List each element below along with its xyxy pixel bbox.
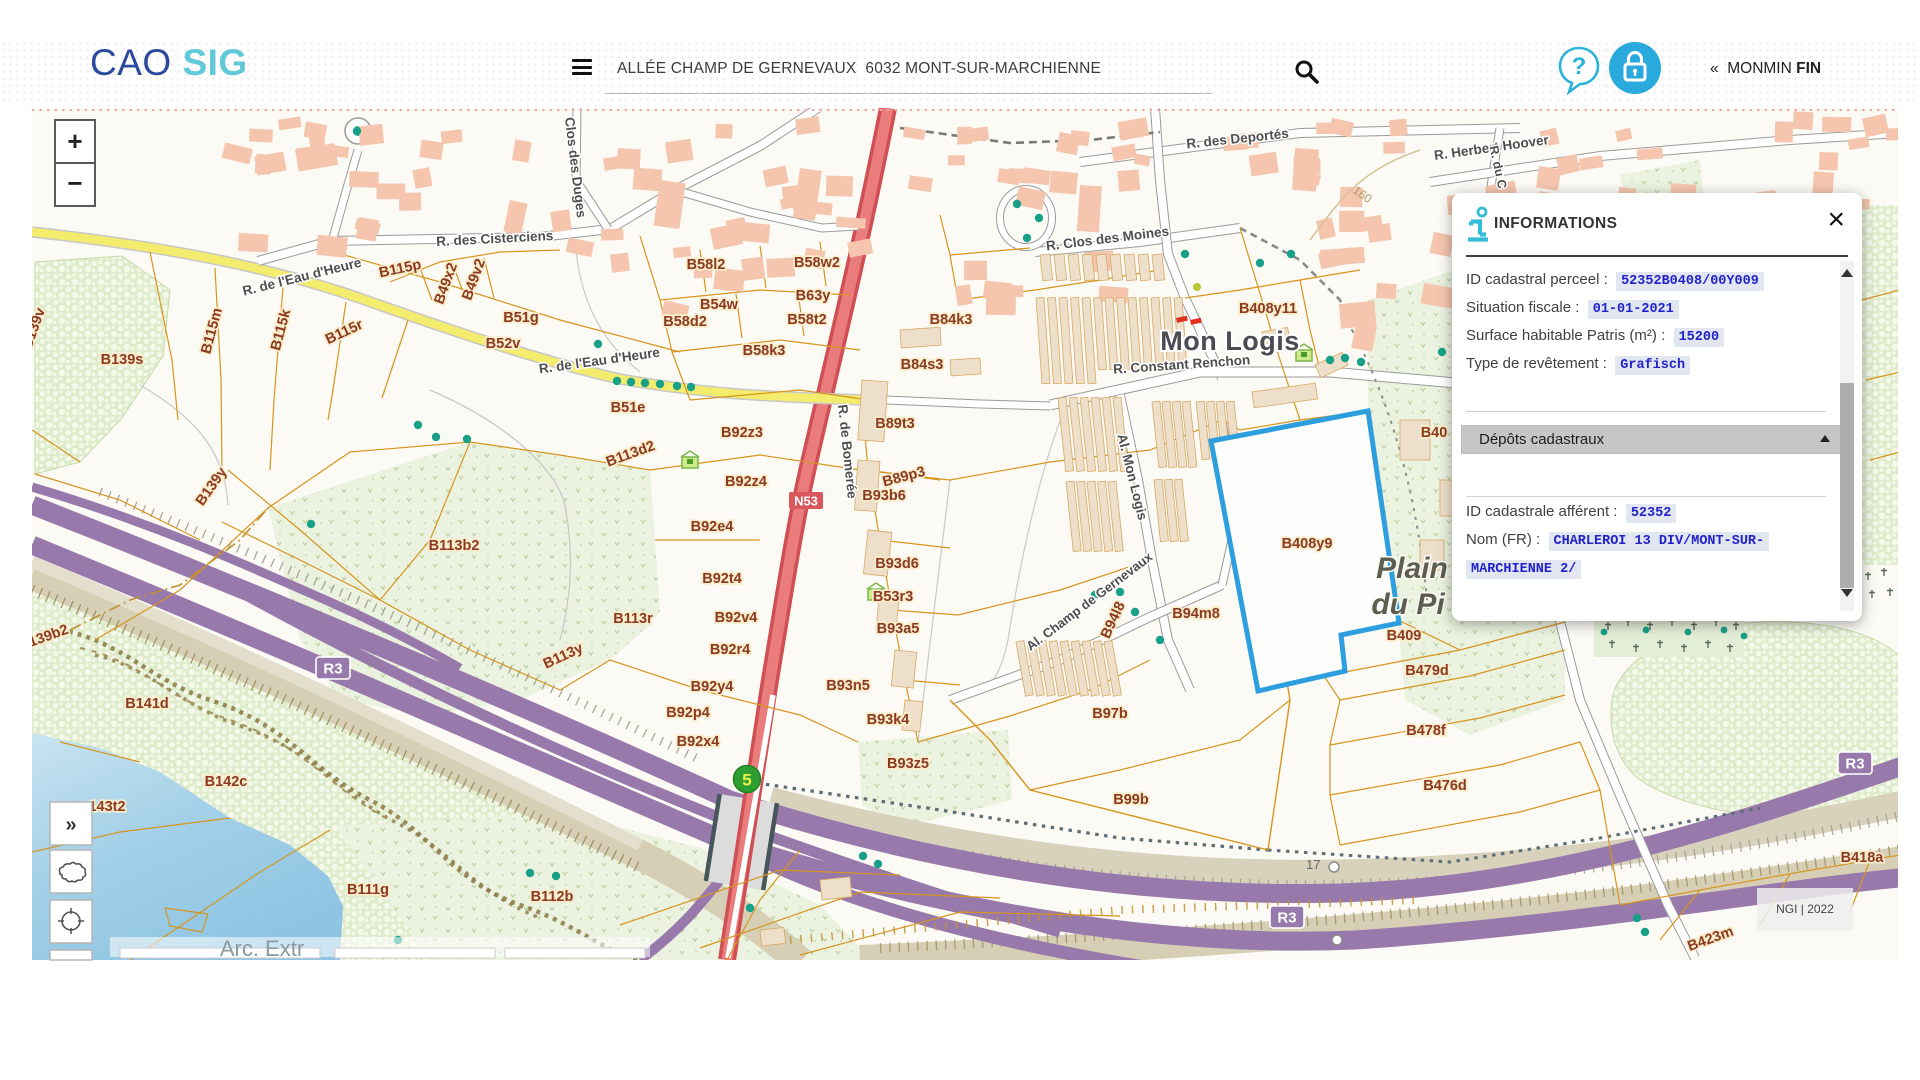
svg-text:B112b: B112b	[531, 889, 574, 905]
svg-text:B97b: B97b	[1092, 706, 1128, 722]
svg-text:B111g: B111g	[347, 882, 389, 898]
svg-text:B63y: B63y	[796, 288, 831, 304]
svg-text:Mon Logis: Mon Logis	[1160, 326, 1299, 356]
svg-text:B139s: B139s	[101, 352, 144, 368]
svg-text:B51e: B51e	[611, 400, 646, 416]
svg-text:B476d: B476d	[1423, 778, 1467, 794]
svg-text:Plain: Plain	[1376, 552, 1448, 585]
svg-text:B93n5: B93n5	[826, 678, 870, 694]
svg-text:B89t3: B89t3	[875, 416, 915, 432]
svg-text:B93z5: B93z5	[887, 756, 929, 772]
svg-text:B92r4: B92r4	[710, 642, 750, 658]
svg-text:B93d6: B93d6	[875, 556, 919, 572]
svg-text:143t2: 143t2	[88, 799, 125, 815]
svg-text:B58t2: B58t2	[787, 312, 827, 328]
svg-text:B52v: B52v	[486, 336, 521, 352]
svg-text:R3: R3	[323, 661, 342, 678]
svg-text:B113b2: B113b2	[429, 538, 480, 554]
svg-text:B418a: B418a	[1841, 850, 1885, 866]
svg-text:B51g: B51g	[503, 310, 538, 326]
svg-text:B92z4: B92z4	[725, 474, 767, 490]
svg-text:B53r3: B53r3	[873, 589, 913, 605]
svg-text:B93a5: B93a5	[877, 621, 920, 637]
svg-text:N53: N53	[794, 494, 818, 509]
svg-text:B93b6: B93b6	[862, 488, 906, 504]
svg-text:?: ?	[1572, 53, 1587, 80]
svg-text:B479d: B479d	[1405, 663, 1449, 679]
svg-text:B141d: B141d	[125, 696, 169, 712]
svg-text:Arc. Extr: Arc. Extr	[220, 936, 304, 961]
svg-text:B92v4: B92v4	[715, 610, 758, 626]
svg-text:B92e4: B92e4	[691, 519, 734, 535]
svg-text:17: 17	[1306, 857, 1320, 872]
svg-text:B58l2: B58l2	[687, 257, 726, 273]
svg-text:R3: R3	[1277, 910, 1296, 927]
svg-text:B92y4: B92y4	[691, 679, 734, 695]
svg-text:B92t4: B92t4	[702, 571, 742, 587]
svg-text:B58k3: B58k3	[743, 343, 786, 359]
svg-text:»: »	[65, 814, 76, 836]
svg-text:B92z3: B92z3	[721, 425, 763, 441]
svg-text:B99b: B99b	[1113, 792, 1149, 808]
svg-text:B409: B409	[1387, 628, 1422, 644]
svg-text:B93k4: B93k4	[867, 712, 910, 728]
svg-text:B84s3: B84s3	[901, 357, 944, 373]
svg-text:B113r: B113r	[613, 611, 653, 627]
svg-text:+: +	[67, 126, 82, 156]
svg-text:5: 5	[742, 771, 751, 790]
svg-text:B408y11: B408y11	[1239, 301, 1297, 317]
svg-text:R3: R3	[1845, 756, 1864, 773]
svg-text:B58w2: B58w2	[794, 255, 840, 271]
svg-text:B84k3: B84k3	[930, 312, 973, 328]
svg-text:B478f: B478f	[1406, 723, 1446, 739]
svg-text:B94m8: B94m8	[1172, 606, 1220, 622]
svg-text:du Pi: du Pi	[1371, 588, 1445, 621]
svg-text:B92x4: B92x4	[677, 734, 720, 750]
svg-text:B408y9: B408y9	[1282, 536, 1333, 552]
svg-text:B92p4: B92p4	[666, 705, 710, 721]
svg-text:B54w: B54w	[700, 297, 739, 313]
svg-text:B40: B40	[1421, 425, 1448, 441]
svg-text:NGI | 2022: NGI | 2022	[1776, 902, 1834, 916]
svg-text:B58d2: B58d2	[663, 314, 707, 330]
svg-text:B142c: B142c	[205, 774, 248, 790]
svg-text:−: −	[67, 168, 82, 198]
